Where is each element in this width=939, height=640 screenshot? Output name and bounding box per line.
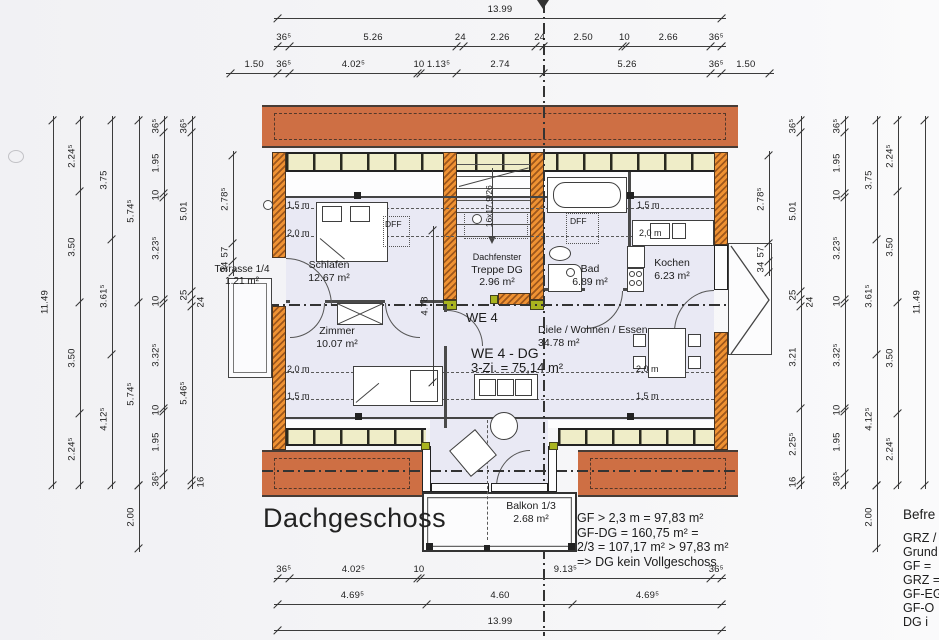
- dim-left-4-1: 5.74⁵: [126, 382, 137, 405]
- dim-left-5-5: 3.32⁵: [151, 344, 162, 367]
- dim-right-2-2: 25: [788, 289, 799, 300]
- dim-line-top-row2: [274, 46, 726, 47]
- dim-top-row3-4: 1.13⁵: [427, 59, 450, 70]
- dim-right-wall-0: 2.78⁵: [756, 187, 767, 210]
- dim-line-left-3: [112, 116, 113, 489]
- dim-left-5-3: 3.23⁵: [151, 236, 162, 259]
- dim-line-top-row3: [226, 73, 773, 74]
- dim-bottom-row1-1: 4.02⁵: [342, 564, 365, 575]
- dim-line-right-4: [877, 116, 878, 489]
- dim-left-5-1: 1.95: [151, 153, 162, 172]
- dim-line-right-total: [925, 116, 926, 489]
- dim-left-4-0: 5.74⁵: [126, 199, 137, 222]
- dim-top-row3-6: 5.26: [617, 59, 636, 70]
- dim-right-5-3: 2.24⁵: [885, 437, 896, 460]
- dim-right-3-4: 10: [832, 295, 843, 306]
- dimension-layer: 13.9936⁵5.26242.26242.50102.6636⁵1.5036⁵…: [0, 0, 939, 640]
- dim-line-top-total: [274, 18, 726, 19]
- dim-left-6-0: 36⁵: [179, 118, 190, 133]
- dim-right-3-5: 3.32⁵: [832, 344, 843, 367]
- dim-top-row2-8: 36⁵: [709, 32, 724, 43]
- dim-line-right-overhang: [877, 481, 878, 552]
- dim-right-3-1: 1.95: [832, 153, 843, 172]
- dim-bottom-row1-3: 9.13⁵: [554, 564, 577, 575]
- dim-top-row2-7: 2.66: [659, 32, 678, 43]
- dim-top-row3-0: 1.50: [245, 59, 264, 70]
- dim-left-3-1: 3.61⁵: [99, 285, 110, 308]
- dim-line-interior-hall: [433, 226, 434, 386]
- dim-top-row3-3: 10: [413, 59, 424, 70]
- dim-bottom-row2-2: 4.69⁵: [636, 590, 659, 601]
- dim-top-row3-1: 36⁵: [276, 59, 291, 70]
- dim-bottom-row2-0: 4.69⁵: [341, 590, 364, 601]
- dim-right-5-1: 3.50: [885, 237, 896, 256]
- dim-right-3-0: 36⁵: [832, 118, 843, 133]
- dim-left-2-1: 3.50: [67, 237, 78, 256]
- dim-right-2-1: 5.01: [788, 201, 799, 220]
- dim-left-6-4: 5.46⁵: [179, 381, 190, 404]
- dim-bottom-row1-4: 36⁵: [709, 564, 724, 575]
- dim-line-bottom-row1: [274, 578, 726, 579]
- dim-left-6-2: 25: [179, 289, 190, 300]
- dim-left-5-2: 10: [151, 190, 162, 201]
- dim-left-3-0: 3.75: [99, 170, 110, 189]
- dim-left-5-7: 1.95: [151, 433, 162, 452]
- dim-right-3-3: 3.23⁵: [832, 236, 843, 259]
- dim-line-bottom-total: [274, 630, 726, 631]
- dim-left-5-4: 10: [151, 295, 162, 306]
- dim-left-total-0: 11.49: [40, 290, 51, 314]
- dim-left-2-0: 2.24⁵: [67, 144, 78, 167]
- dim-right-3-7: 1.95: [832, 433, 843, 452]
- dim-top-row2-2: 24: [455, 32, 466, 43]
- dim-top-row2-1: 5.26: [363, 32, 382, 43]
- dim-right-wall-2: 34: [756, 261, 767, 272]
- dim-top-row2-4: 24: [534, 32, 545, 43]
- dim-bottom-row2-1: 4.60: [490, 590, 509, 601]
- dim-left-6-5: 16: [196, 477, 207, 488]
- dim-right-overhang-0: 2.00: [864, 507, 875, 526]
- dim-right-wall-1: 57: [756, 247, 767, 258]
- floorplan-sheet: Terrasse 1/4 1.21 m² Schlafen 12.67 m² Z…: [0, 0, 939, 640]
- dim-bottom-row1-2: 10: [413, 564, 424, 575]
- dim-right-3-6: 10: [832, 404, 843, 415]
- dim-left-6-3: 24: [196, 297, 207, 308]
- dim-top-row2-0: 36⁵: [276, 32, 291, 43]
- dim-top-row2-6: 10: [619, 32, 630, 43]
- dim-left-wall-1: 57: [220, 247, 231, 258]
- dim-interior-hall-0: 4.78: [420, 296, 431, 315]
- dim-left-5-0: 36⁵: [151, 118, 162, 133]
- dim-left-3-2: 4.12⁵: [99, 408, 110, 431]
- dim-line-left-total: [53, 116, 54, 489]
- dim-right-3-8: 36⁵: [832, 471, 843, 486]
- dim-bottom-total-0: 13.99: [488, 616, 513, 627]
- dim-right-4-0: 3.75: [864, 170, 875, 189]
- dim-right-total-0: 11.49: [912, 290, 923, 314]
- dim-top-total-0: 13.99: [488, 4, 513, 15]
- dim-top-row2-3: 2.26: [490, 32, 509, 43]
- dim-right-5-0: 2.24⁵: [885, 144, 896, 167]
- dim-right-4-1: 3.61⁵: [864, 285, 875, 308]
- dim-bottom-row1-0: 36⁵: [276, 564, 291, 575]
- dim-left-2-3: 2.24⁵: [67, 437, 78, 460]
- dim-right-2-3: 24: [805, 297, 816, 308]
- dim-left-5-6: 10: [151, 404, 162, 415]
- dim-right-2-6: 16: [788, 477, 799, 488]
- dim-line-bottom-row2: [274, 604, 726, 605]
- dim-right-4-2: 4.12⁵: [864, 408, 875, 431]
- dim-top-row3-8: 1.50: [736, 59, 755, 70]
- dim-left-6-1: 5.01: [179, 201, 190, 220]
- dim-top-row3-7: 36⁵: [709, 59, 724, 70]
- dim-left-2-2: 3.50: [67, 348, 78, 367]
- dim-right-2-5: 2.25⁵: [788, 432, 799, 455]
- dim-right-2-0: 36⁵: [788, 118, 799, 133]
- dim-right-2-4: 3.21: [788, 347, 799, 366]
- dim-left-5-8: 36⁵: [151, 471, 162, 486]
- dim-right-5-2: 3.50: [885, 348, 896, 367]
- dim-left-wall-2: 34: [220, 261, 231, 272]
- dim-top-row3-5: 2.74: [490, 59, 509, 70]
- dim-left-wall-0: 2.78⁵: [220, 187, 231, 210]
- dim-right-3-2: 10: [832, 190, 843, 201]
- dim-line-left-overhang: [139, 481, 140, 552]
- dim-left-overhang-0: 2.00: [126, 507, 137, 526]
- dim-top-row2-5: 2.50: [574, 32, 593, 43]
- dim-top-row3-2: 4.02⁵: [342, 59, 365, 70]
